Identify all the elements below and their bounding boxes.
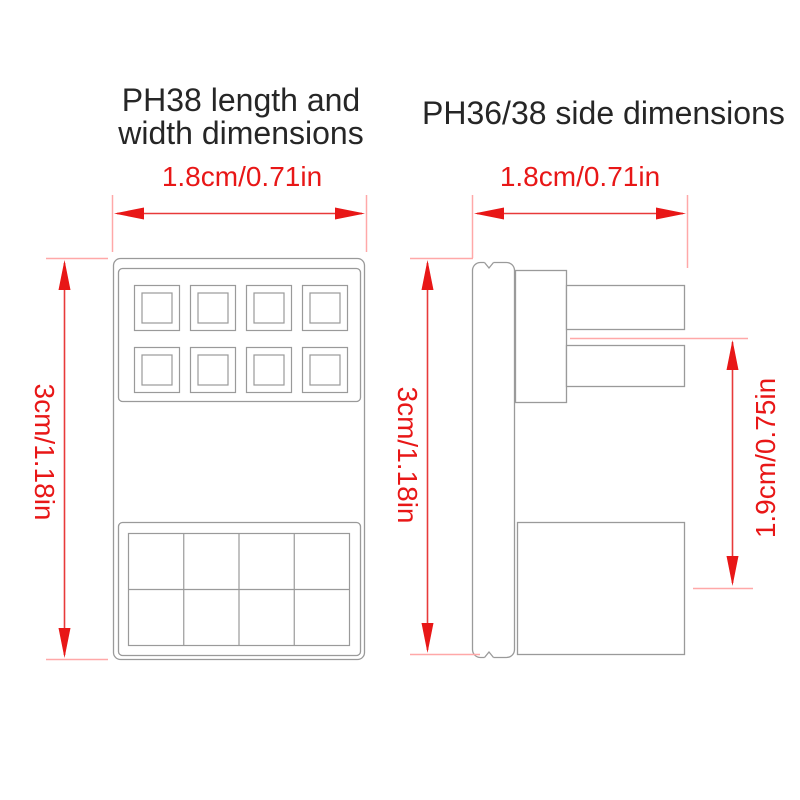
front-view-width-dimension — [113, 195, 367, 252]
front-view-title-line1: PH38 length and — [81, 84, 401, 117]
side-panel-bezel — [473, 263, 515, 658]
rear-body-block — [518, 523, 685, 655]
arrowhead-up — [727, 340, 739, 370]
side-depth-dimension-label: 1.9cm/0.75in — [750, 378, 782, 538]
arrowhead-left — [114, 208, 144, 220]
arrowhead-up — [59, 260, 71, 290]
arrowhead-right — [656, 208, 686, 220]
upper-terminal-block — [567, 286, 685, 330]
front-view-title: PH38 length and width dimensions — [81, 84, 401, 150]
arrowhead-down — [59, 628, 71, 658]
terminal-panel-group — [119, 523, 361, 656]
dimension-diagram-page: { "colors": { "dimension_red": "#e81717"… — [0, 0, 800, 800]
front-height-dimension-label: 3cm/1.18in — [28, 384, 60, 521]
side-view-title: PH36/38 side dimensions — [422, 97, 742, 130]
side-view-outline — [473, 261, 685, 659]
side-body-block — [516, 271, 567, 403]
arrowhead-left — [474, 208, 504, 220]
keypad-panel — [119, 269, 361, 402]
lower-terminal-block — [567, 346, 685, 387]
front-view-title-line2: width dimensions — [81, 117, 401, 150]
arrowhead-down — [727, 556, 739, 586]
side-height-dimension-label: 3cm/1.18in — [391, 387, 423, 524]
side-width-dimension-label: 1.8cm/0.71in — [430, 161, 730, 193]
arrowhead-right — [335, 208, 365, 220]
front-width-dimension-label: 1.8cm/0.71in — [92, 161, 392, 193]
arrowhead-down — [422, 623, 434, 653]
side-view-width-dimension — [473, 195, 688, 268]
arrowhead-up — [422, 260, 434, 290]
